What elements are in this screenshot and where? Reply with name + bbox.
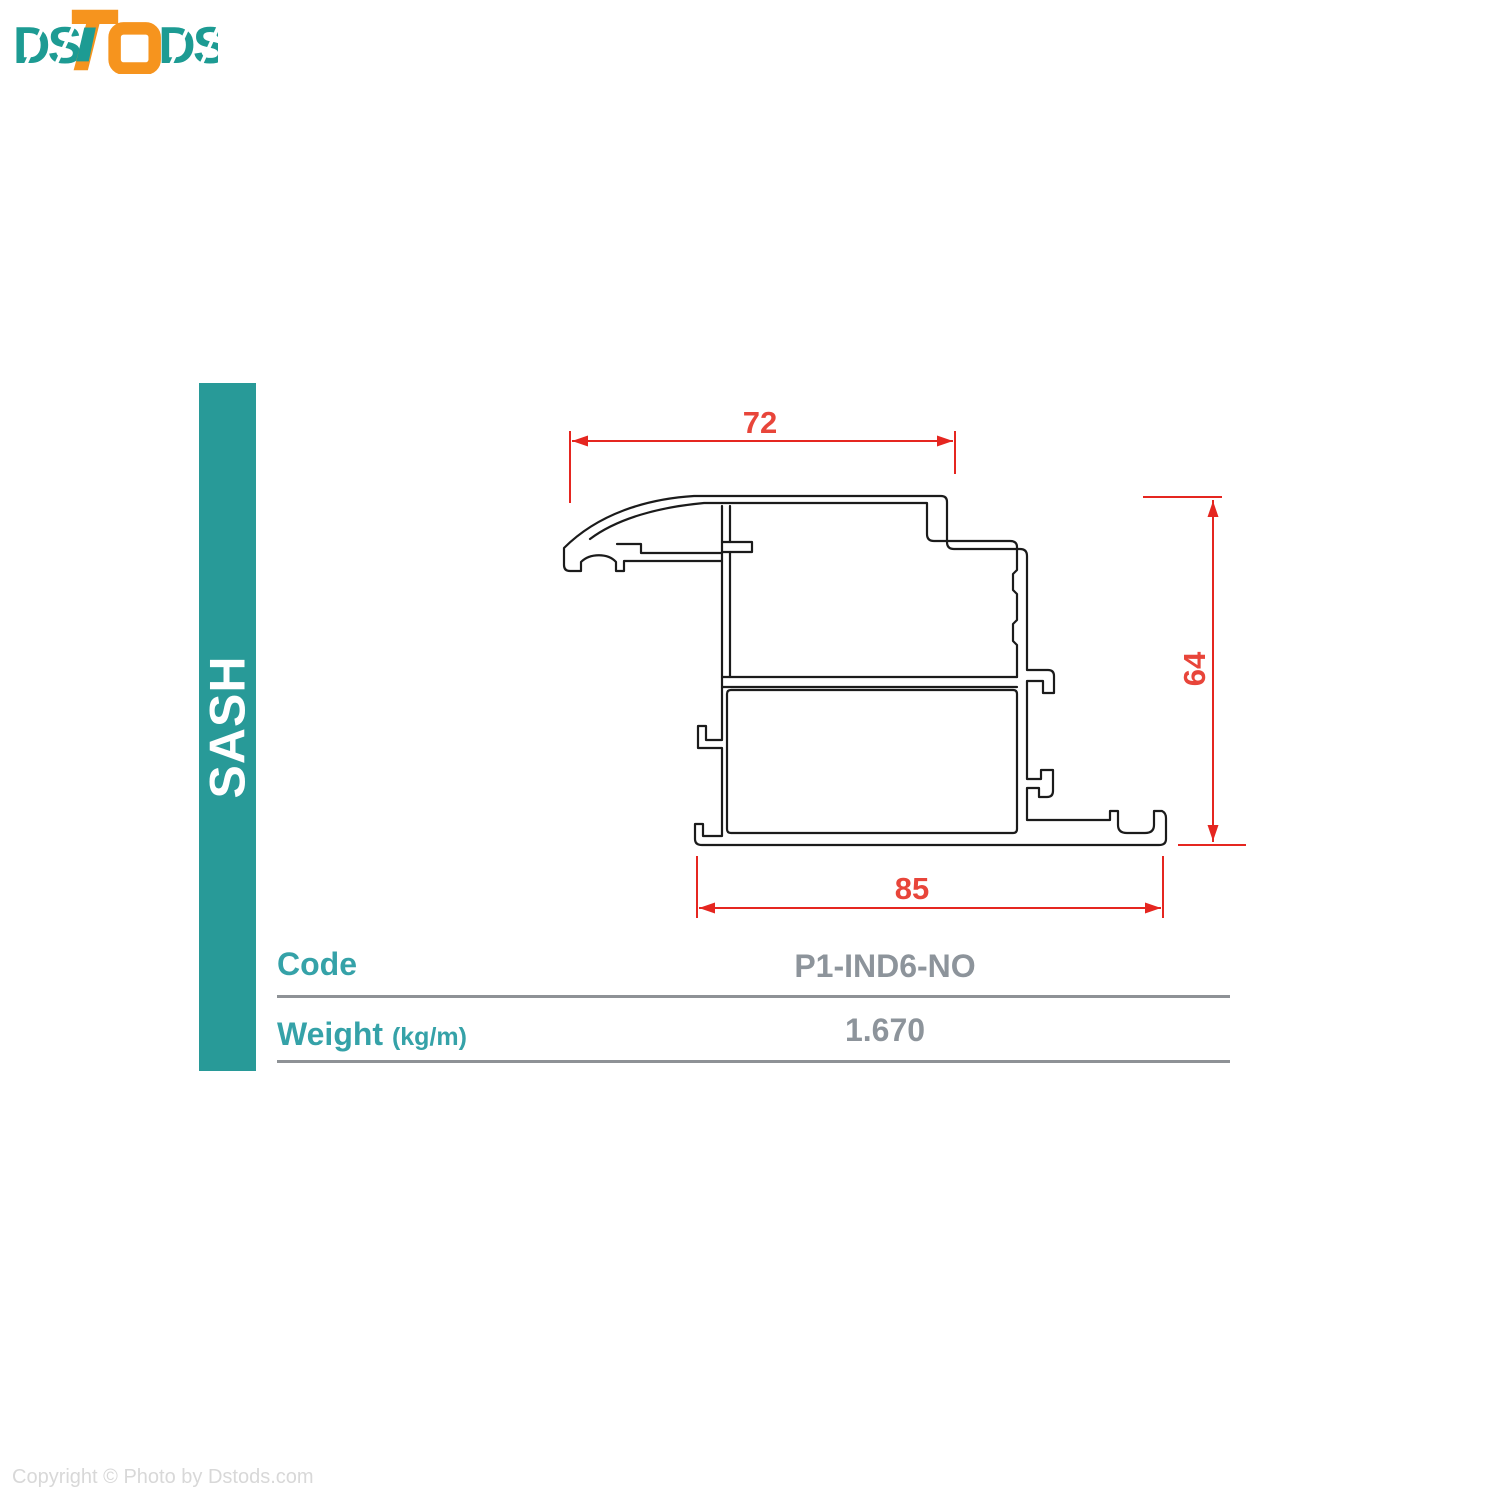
arrow-icon xyxy=(1145,903,1161,914)
weight-value: 1.670 xyxy=(540,1012,1230,1049)
profile-inner-top xyxy=(590,503,1017,677)
table-divider xyxy=(277,1060,1230,1063)
weight-unit-text: (kg/m) xyxy=(392,1023,467,1051)
arrow-icon xyxy=(1208,501,1219,517)
profile-underwing-line xyxy=(617,544,722,553)
profile-lower-chamber xyxy=(727,690,1017,833)
logo-ds-left-text: DS xyxy=(13,16,81,74)
table-divider xyxy=(277,995,1230,998)
brand-logo: DS DS xyxy=(13,6,218,74)
arrow-icon xyxy=(937,436,953,447)
dim-top-width-label: 72 xyxy=(743,405,777,440)
arrow-icon xyxy=(699,903,715,914)
profile-glazing-stub xyxy=(722,542,752,552)
dim-bottom-width-label: 85 xyxy=(895,871,929,906)
profile-outline xyxy=(564,496,1166,845)
profile-drawing: 72 85 64 xyxy=(540,380,1260,950)
dimensions: 72 85 64 xyxy=(570,405,1246,918)
logo-ds-right-group: DS xyxy=(158,16,218,74)
logo-o-icon xyxy=(115,28,155,68)
section-title: SASH xyxy=(199,656,257,799)
weight-label-text: Weight xyxy=(277,1016,383,1052)
profile-divider xyxy=(722,677,1017,687)
section-sidebar: SASH xyxy=(199,383,256,1071)
logo-ds-left-group: DS xyxy=(13,16,81,74)
dim-right-height-label: 64 xyxy=(1177,651,1212,686)
code-label-text: Code xyxy=(277,946,357,982)
copyright-watermark: Copyright © Photo by Dstods.com xyxy=(12,1466,314,1489)
weight-label: Weight (kg/m) xyxy=(277,1016,467,1053)
code-label: Code xyxy=(277,946,357,983)
code-value: P1-IND6-NO xyxy=(540,948,1230,985)
arrow-icon xyxy=(1208,825,1219,841)
profile-outer-contour xyxy=(564,496,1166,845)
arrow-icon xyxy=(572,436,588,447)
